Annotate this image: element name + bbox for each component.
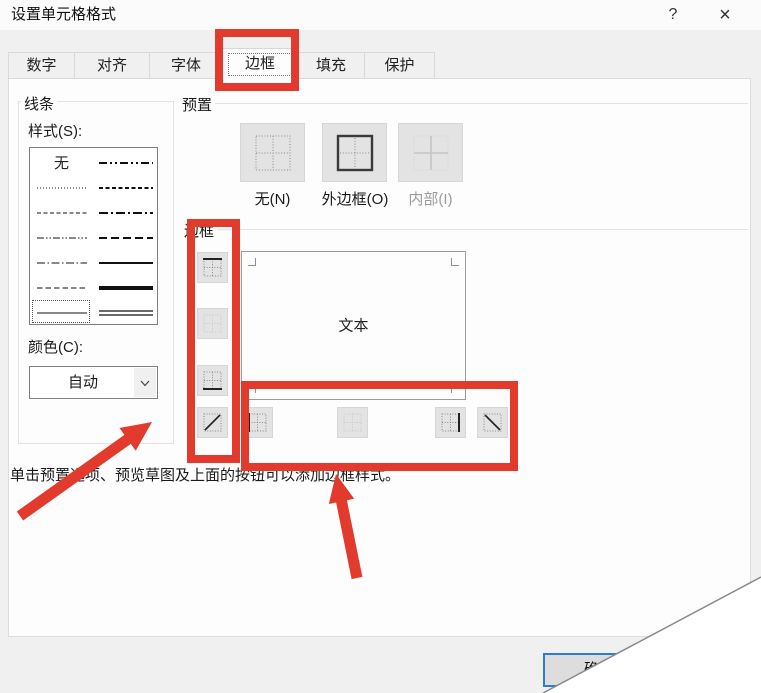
medium-dashed-line-icon — [98, 226, 154, 250]
line-style-option-med-small-dash[interactable] — [96, 175, 156, 200]
double-line-icon — [98, 301, 154, 325]
line-style-option-med-solid[interactable] — [96, 250, 156, 275]
chevron-down-icon[interactable] — [134, 368, 156, 397]
preset-none-icon — [253, 133, 293, 173]
tab-focus-rect — [228, 53, 292, 76]
line-style-option-dashed[interactable] — [33, 275, 90, 300]
preview-corner-mark-top-right — [451, 258, 459, 266]
line-style-option-med-dash-dot[interactable] — [96, 200, 156, 225]
preview-corner-mark-bottom-left — [248, 385, 256, 393]
border-bottom-icon — [202, 370, 223, 391]
tab-alignment[interactable]: 对齐 — [74, 52, 150, 79]
thick-solid-line-icon — [98, 276, 154, 300]
line-style-option-med-dashed[interactable] — [96, 225, 156, 250]
border-top-icon — [202, 257, 223, 278]
color-dropdown-value: 自动 — [30, 367, 136, 398]
tab-font[interactable]: 字体 — [149, 52, 223, 79]
line-style-column-left: 无 — [33, 150, 90, 325]
border-group-line — [216, 229, 748, 230]
border-diagonal-down-button[interactable] — [477, 407, 508, 438]
color-dropdown[interactable]: 自动 — [29, 366, 158, 399]
line-style-option-double[interactable] — [96, 300, 156, 325]
tab-number[interactable]: 数字 — [8, 52, 75, 79]
line-group-title: 线条 — [21, 93, 57, 114]
line-style-listbox: 无 — [29, 147, 158, 325]
medium-dash-dot-dot-line-icon — [98, 151, 154, 175]
small-dash-line-icon — [36, 201, 88, 225]
presets-group-line — [214, 103, 748, 104]
style-label: 样式(S): — [28, 120, 82, 141]
border-left-icon — [247, 412, 268, 433]
color-label: 颜色(C): — [28, 336, 83, 357]
dash-dot-dot-line-icon — [36, 226, 88, 250]
preset-inside-icon — [411, 133, 451, 173]
tab-border[interactable]: 边框 — [222, 48, 298, 80]
line-style-selection-rect — [32, 300, 90, 323]
border-inside-vertical-icon — [342, 412, 363, 433]
presets-group-title: 预置 — [179, 94, 215, 115]
border-group-title: 边框 — [181, 220, 217, 241]
border-left-button[interactable] — [242, 407, 273, 438]
line-style-column-right — [96, 150, 156, 325]
close-icon[interactable]: × — [708, 0, 742, 30]
border-inside-horizontal-icon — [202, 313, 223, 334]
preview-corner-mark-top-left — [248, 258, 256, 266]
border-inside-horizontal-button — [197, 308, 228, 339]
help-icon[interactable]: ? — [656, 0, 690, 30]
preset-inside-button — [398, 123, 463, 182]
preview-corner-mark-bottom-right — [451, 385, 459, 393]
line-style-option-none[interactable]: 无 — [33, 150, 90, 175]
line-style-option-small-dash[interactable] — [33, 200, 90, 225]
border-top-button[interactable] — [197, 252, 228, 283]
medium-solid-line-icon — [98, 251, 154, 275]
format-cells-dialog: 设置单元格格式 ? × 数字 对齐 字体 边框 填充 保护 线条 样式(S): … — [0, 0, 761, 693]
medium-dash-dot-line-icon — [98, 201, 154, 225]
tab-fill[interactable]: 填充 — [297, 52, 365, 79]
line-style-option-dash-dot-dot[interactable] — [33, 225, 90, 250]
preset-outline-icon — [335, 133, 375, 173]
help-text: 单击预置选项、预览草图及上面的按钮可以添加边框样式。 — [10, 464, 555, 485]
border-diagonal-up-button[interactable] — [197, 407, 228, 438]
border-diagonal-up-icon — [202, 412, 223, 433]
border-diagonal-down-icon — [482, 412, 503, 433]
line-style-option-dash-dot[interactable] — [33, 250, 90, 275]
border-bottom-button[interactable] — [197, 365, 228, 396]
dialog-title: 设置单元格格式 — [11, 0, 116, 30]
line-style-option-dotted[interactable] — [33, 175, 90, 200]
border-preview[interactable]: 文本 — [241, 251, 466, 400]
title-bar: 设置单元格格式 ? × — [0, 0, 761, 30]
line-style-option-med-dash-dot-dot[interactable] — [96, 150, 156, 175]
border-inside-vertical-button — [337, 407, 368, 438]
tab-protection[interactable]: 保护 — [364, 52, 435, 79]
ok-button[interactable]: 确定 — [543, 653, 655, 687]
dotted-line-icon — [36, 176, 88, 200]
border-right-icon — [440, 412, 461, 433]
preset-inside-label: 内部(I) — [398, 188, 463, 209]
preset-none-button[interactable] — [240, 123, 305, 182]
preset-outline-label: 外边框(O) — [314, 188, 396, 209]
medium-small-dash-line-icon — [98, 176, 154, 200]
dashed-line-icon — [36, 276, 88, 300]
preview-text: 文本 — [242, 314, 465, 335]
line-style-option-thick-solid[interactable] — [96, 275, 156, 300]
border-right-button[interactable] — [435, 407, 466, 438]
dash-dot-line-icon — [36, 251, 88, 275]
preset-none-label: 无(N) — [240, 188, 305, 209]
preset-outline-button[interactable] — [322, 123, 387, 182]
